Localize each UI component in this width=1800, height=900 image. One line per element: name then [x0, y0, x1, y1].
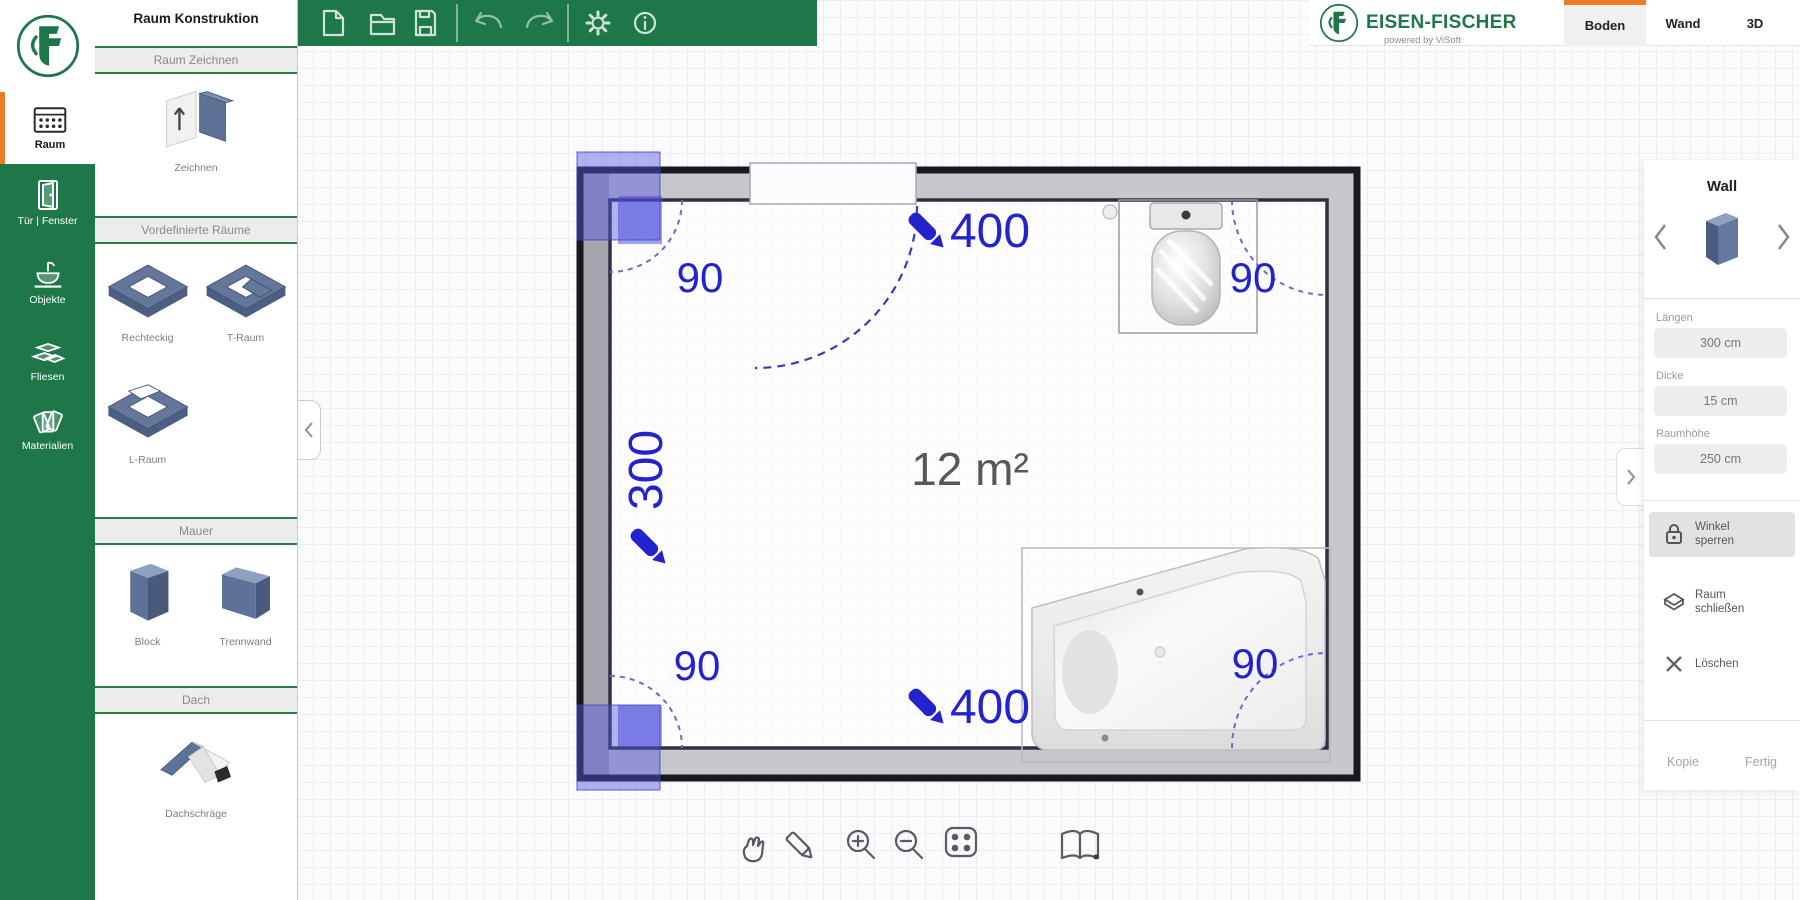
x-icon [1663, 653, 1685, 675]
done-link[interactable]: Fertig [1745, 755, 1777, 769]
sidebar-item-label: Tür | Fenster [18, 216, 78, 228]
room-area-label: 12 m² [911, 443, 1029, 495]
button-label: Raum [1695, 589, 1726, 601]
sidebar-item-label: Raum [35, 139, 66, 151]
corner-handle-bottom-left[interactable] [577, 705, 662, 790]
button-label: Löschen [1695, 657, 1738, 671]
catalog-book-icon[interactable] [1062, 831, 1099, 860]
tool-rechteckig[interactable]: Rechteckig [100, 258, 195, 344]
angle-bottom-left: 90 [674, 642, 721, 689]
tool-zeichnen[interactable]: Zeichnen [146, 84, 246, 174]
save-file-icon[interactable] [416, 11, 435, 35]
swatches-icon [31, 405, 65, 437]
new-file-icon[interactable] [324, 11, 343, 35]
open-folder-icon[interactable] [371, 15, 394, 34]
tool-label: Zeichnen [174, 162, 217, 174]
angle-bottom-right: 90 [1232, 640, 1279, 687]
file-toolbar [298, 0, 817, 46]
properties-footer: Kopie Fertig [1644, 755, 1800, 769]
svg-text:400: 400 [950, 205, 1030, 258]
sidebar-item-objekte[interactable]: Objekte [0, 250, 95, 316]
thickness-label: Dicke [1656, 370, 1684, 382]
chevron-right-icon [1626, 468, 1636, 486]
tool-dachschraege[interactable]: Dachschräge [146, 728, 246, 820]
room-icon [1663, 591, 1685, 613]
svg-text:400: 400 [950, 681, 1030, 734]
close-room-button[interactable]: Raum schließen [1649, 580, 1795, 625]
tool-block[interactable]: Block [100, 556, 195, 648]
sidebar-item-tuer-fenster[interactable]: Tür | Fenster [0, 170, 95, 236]
section-header-mauer: Mauer [95, 517, 297, 545]
corner-handle-top-left[interactable] [577, 152, 662, 244]
undo-icon[interactable] [476, 13, 501, 27]
tool-label: Block [135, 636, 161, 648]
tool-label: Rechteckig [122, 332, 174, 344]
properties-panel: Wall Längen 300 cm Dicke 15 cm Raumhöhe … [1644, 160, 1800, 790]
tiles-icon [32, 105, 68, 135]
angle-top-right: 90 [1230, 254, 1277, 301]
copy-link[interactable]: Kopie [1667, 755, 1699, 769]
svg-text:300: 300 [620, 430, 673, 510]
next-wall-type-button[interactable] [1776, 222, 1792, 257]
l-room-icon [104, 376, 192, 450]
button-label: Winkel [1695, 521, 1730, 533]
measure-pencil-icon[interactable] [786, 832, 815, 861]
brand-tagline: powered by ViSoft [1384, 35, 1461, 46]
app-logo-icon [15, 13, 81, 79]
section-header-dach: Dach [95, 686, 297, 714]
zoom-out-icon[interactable] [896, 831, 922, 858]
panel-title: Raum Konstruktion [95, 0, 297, 36]
length-label: Längen [1656, 312, 1693, 324]
sidebar-item-fliesen[interactable]: Fliesen [0, 328, 95, 394]
sidebar-item-raum[interactable]: Raum [0, 92, 95, 164]
section-header-vordefinierte-raeume: Vordefinierte Räume [95, 216, 297, 244]
chevron-right-icon [1776, 222, 1792, 252]
brand-name: EISEN-FISCHER [1366, 12, 1517, 34]
washbasin-icon [30, 259, 66, 291]
angle-top-left: 90 [677, 254, 724, 301]
pan-hand-icon[interactable] [744, 838, 763, 862]
zoom-in-icon[interactable] [848, 831, 874, 858]
lock-icon [1663, 522, 1685, 546]
tab-boden[interactable]: Boden [1564, 0, 1646, 46]
wall-type-thumbnail[interactable] [1692, 205, 1752, 280]
rect-room-icon [104, 258, 192, 328]
sidebar-item-label: Materialien [22, 441, 73, 453]
fit-view-icon[interactable] [946, 828, 976, 856]
tool-t-raum[interactable]: T-Raum [198, 258, 293, 344]
tool-l-raum[interactable]: L-Raum [100, 376, 195, 466]
thickness-input[interactable]: 15 cm [1654, 386, 1787, 416]
tool-label: Trennwand [219, 636, 271, 648]
t-room-icon [202, 258, 290, 328]
room-height-label: Raumhöhe [1656, 428, 1710, 440]
roof-slope-icon [150, 728, 242, 804]
button-label: schließen [1695, 603, 1744, 615]
app-logo[interactable] [0, 0, 95, 92]
chevron-left-icon [1652, 222, 1668, 252]
tool-panel: Raum Konstruktion Raum Zeichnen Zeichnen… [95, 0, 298, 900]
brand-mark-icon [1318, 2, 1360, 44]
wall-3d-icon [1692, 205, 1752, 275]
section-header-raum-zeichnen: Raum Zeichnen [95, 46, 297, 74]
brand-logo: EISEN-FISCHER powered by ViSoft [1318, 2, 1538, 44]
redo-icon[interactable] [527, 13, 552, 27]
panel-collapse-button[interactable] [298, 400, 321, 460]
tiles-stack-icon [30, 338, 66, 368]
info-icon[interactable] [635, 13, 655, 33]
settings-gear-icon[interactable] [587, 12, 609, 34]
lock-angle-button[interactable]: Winkel sperren [1649, 512, 1795, 557]
sidebar-item-label: Fliesen [31, 372, 65, 384]
block-icon [108, 556, 188, 632]
tool-label: T-Raum [227, 332, 264, 344]
tab-3d[interactable]: 3D [1730, 0, 1780, 46]
tool-label: L-Raum [129, 454, 166, 466]
tab-wand[interactable]: Wand [1650, 0, 1716, 46]
chevron-left-icon [304, 421, 314, 439]
room-height-input[interactable]: 250 cm [1654, 444, 1787, 474]
button-label: sperren [1695, 535, 1734, 547]
sidebar-item-materialien[interactable]: Materialien [0, 394, 95, 464]
draw-wall-icon [150, 84, 242, 158]
properties-title: Wall [1644, 178, 1800, 195]
delete-button[interactable]: Löschen [1649, 645, 1795, 683]
selected-left-wall[interactable] [581, 171, 609, 777]
door-icon [33, 178, 63, 212]
partition-wall-icon [206, 556, 286, 632]
length-input[interactable]: 300 cm [1654, 328, 1787, 358]
tool-label: Dachschräge [165, 808, 227, 820]
properties-collapse-button[interactable] [1616, 448, 1645, 506]
sidebar-item-label: Objekte [29, 295, 65, 307]
tool-trennwand[interactable]: Trennwand [198, 556, 293, 648]
prev-wall-type-button[interactable] [1652, 222, 1668, 257]
